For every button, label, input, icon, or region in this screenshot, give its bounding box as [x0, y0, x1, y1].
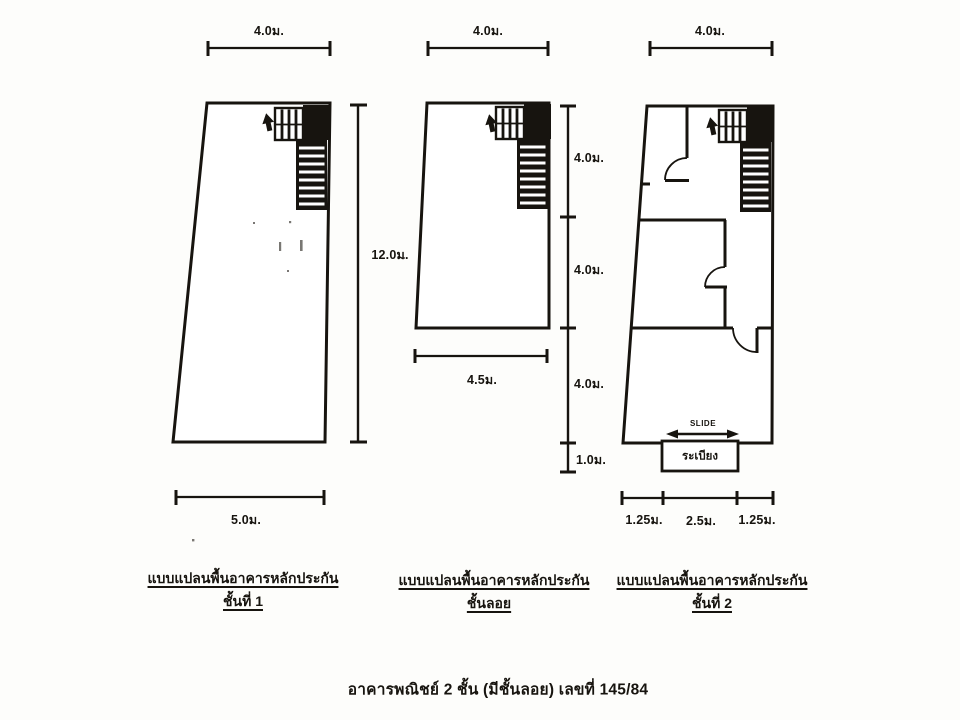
mezzanine-plan-subtitle: ชั้นลอย [467, 596, 511, 610]
balcony-label: ระเบียง [682, 451, 718, 463]
scanned-floorplan-sheet: 4.0ม. 4.0ม. 4.0ม. 12.0ม. 4.0ม. 4.0ม. 4.0… [0, 0, 960, 720]
segment-depth-label-2: 4.0ม. [574, 264, 604, 277]
second-floor-bottom-right-width-label: 1.25ม. [738, 514, 775, 527]
segment-depth-label-3: 4.0ม. [574, 378, 604, 391]
mezzanine-plan-title: แบบแปลนพื้นอาคารหลักประกัน [399, 573, 590, 587]
second-floor-bottom-left-width-label: 1.25ม. [625, 514, 662, 527]
building-depth-label: 12.0ม. [371, 249, 408, 262]
first-floor-top-width-label: 4.0ม. [254, 25, 284, 38]
segment-depth-label-1: 4.0ม. [574, 152, 604, 165]
first-floor-top-dimension-line [208, 41, 330, 56]
height-dimension-line-12m [350, 105, 367, 442]
sheet-caption: อาคารพณิชย์ 2 ชั้น (มีชั้นลอย) เลขที่ 14… [348, 682, 648, 698]
mezzanine-plan [415, 41, 576, 472]
mezzanine-bottom-width-label: 4.5ม. [467, 374, 497, 387]
first-floor-plan [173, 41, 367, 505]
first-floor-bottom-width-label: 5.0ม. [231, 514, 261, 527]
second-floor-bottom-dimension-line [622, 491, 773, 505]
slide-label: SLIDE [690, 420, 716, 428]
first-floor-bottom-dimension-line [176, 490, 324, 505]
segment-depth-label-4: 1.0ม. [576, 454, 606, 467]
second-floor-plan [622, 41, 774, 505]
second-floor-top-width-label: 4.0ม. [695, 25, 725, 38]
second-floor-plan-subtitle: ชั้นที่ 2 [692, 596, 732, 610]
first-floor-plan-title: แบบแปลนพื้นอาคารหลักประกัน [148, 571, 339, 585]
mezzanine-bottom-dimension-line [415, 349, 547, 363]
first-floor-plan-subtitle: ชั้นที่ 1 [223, 594, 263, 608]
second-floor-plan-title: แบบแปลนพื้นอาคารหลักประกัน [617, 573, 808, 587]
floorplan-linework [0, 0, 960, 720]
second-floor-top-dimension-line [650, 41, 772, 56]
second-floor-bottom-mid-width-label: 2.5ม. [686, 515, 716, 528]
mezzanine-top-width-label: 4.0ม. [473, 25, 503, 38]
mezzanine-top-dimension-line [428, 41, 548, 56]
